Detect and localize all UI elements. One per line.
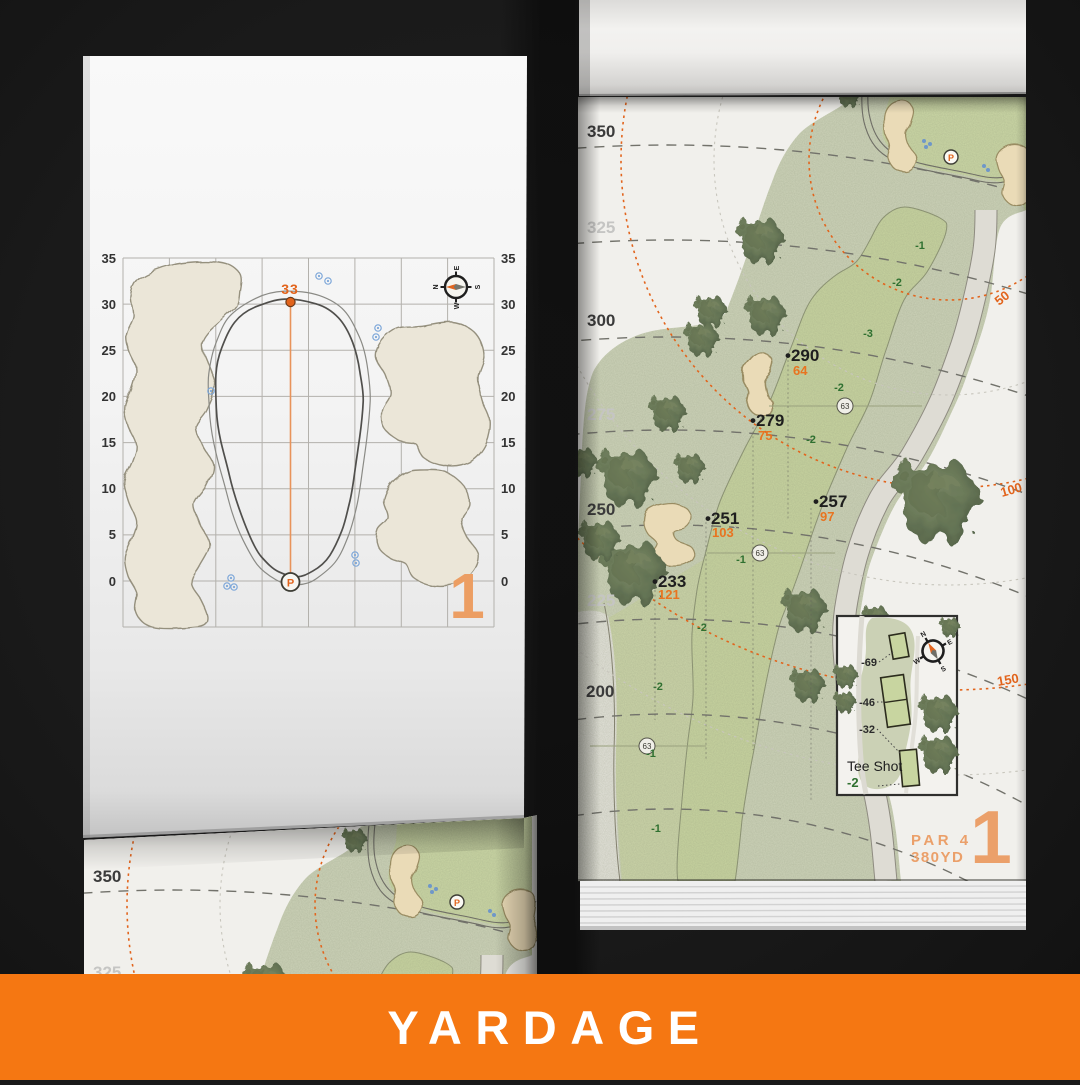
svg-text:YARDAGE: YARDAGE xyxy=(387,1001,712,1054)
